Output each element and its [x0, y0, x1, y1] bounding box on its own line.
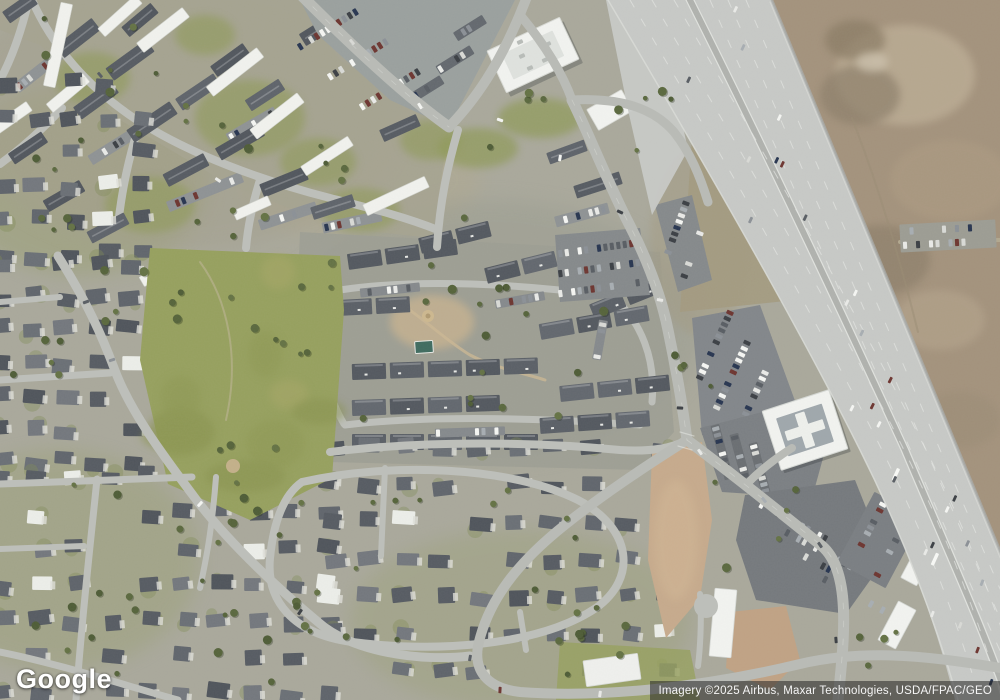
layer-fx: [0, 0, 1000, 700]
satellite-imagery[interactable]: [0, 0, 1000, 700]
imagery-attribution: Imagery ©2025 Airbus, Maxar Technologies…: [650, 681, 1000, 700]
google-logo[interactable]: Google: [16, 664, 112, 695]
attribution-text: Imagery ©2025 Airbus, Maxar Technologies…: [658, 685, 992, 697]
map-viewport: Google Imagery ©2025 Airbus, Maxar Techn…: [0, 0, 1000, 700]
